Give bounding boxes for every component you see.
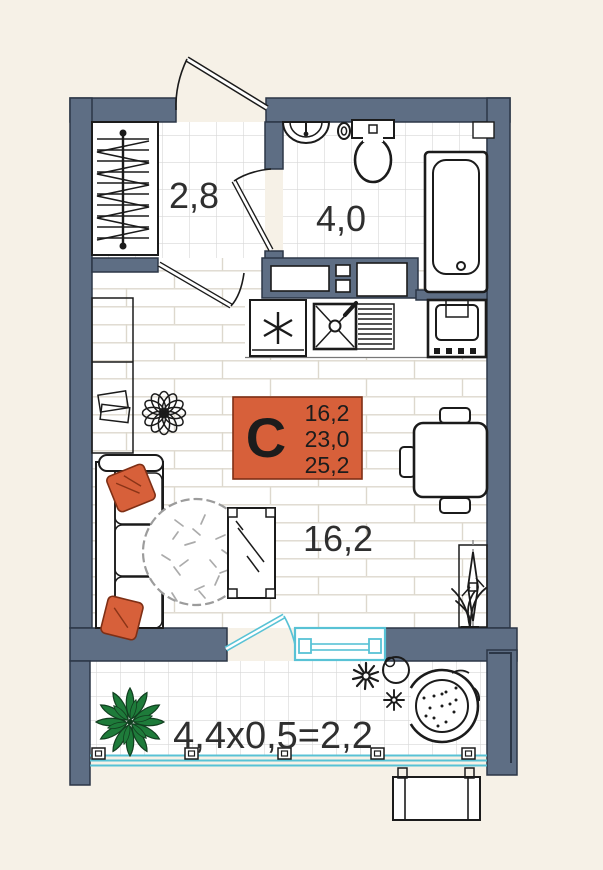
badge-value-total: 23,0 (305, 426, 350, 452)
wall-top-right (266, 98, 510, 122)
wall-left (70, 98, 92, 628)
corner-vent-notch (473, 122, 494, 138)
wall-balcony-right (487, 650, 517, 775)
wall-hall-bottom (92, 258, 158, 272)
balcony-dimension-label: 4,4х0,5=2,2 (173, 715, 373, 757)
area-badge: С 16,2 23,0 25,2 (233, 397, 362, 479)
wall-bottom-left (70, 628, 227, 661)
badge-letter: С (246, 406, 286, 469)
wall-right (487, 98, 510, 628)
living-room-area-label: 16,2 (303, 518, 373, 559)
wall-bath-separator-top (265, 122, 283, 169)
bathroom-drain-icon (338, 123, 350, 139)
wall-balcony-left (70, 661, 90, 785)
stove-icon (428, 300, 486, 357)
badge-value-overall: 25,2 (305, 452, 350, 478)
bathtub-icon (425, 152, 487, 292)
wardrobe-rail-icon (92, 122, 158, 255)
badge-value-living: 16,2 (305, 400, 350, 426)
refrigerator-icon (250, 300, 306, 356)
floor-plan-drawing: С 16,2 23,0 25,2 2,8 4,0 16,2 4,4х0,5=2,… (0, 0, 603, 870)
stool-icon (440, 408, 470, 423)
floor-plan-page: С 16,2 23,0 25,2 2,8 4,0 16,2 4,4х0,5=2,… (0, 0, 603, 870)
stool-icon (440, 498, 470, 513)
hallway-area-label: 2,8 (169, 175, 219, 216)
balcony-window-icon (295, 628, 385, 660)
bathroom-area-label: 4,0 (316, 198, 366, 239)
coffee-table-icon (228, 508, 275, 598)
toilet-icon (352, 120, 394, 182)
papasan-chair-icon (411, 670, 479, 742)
